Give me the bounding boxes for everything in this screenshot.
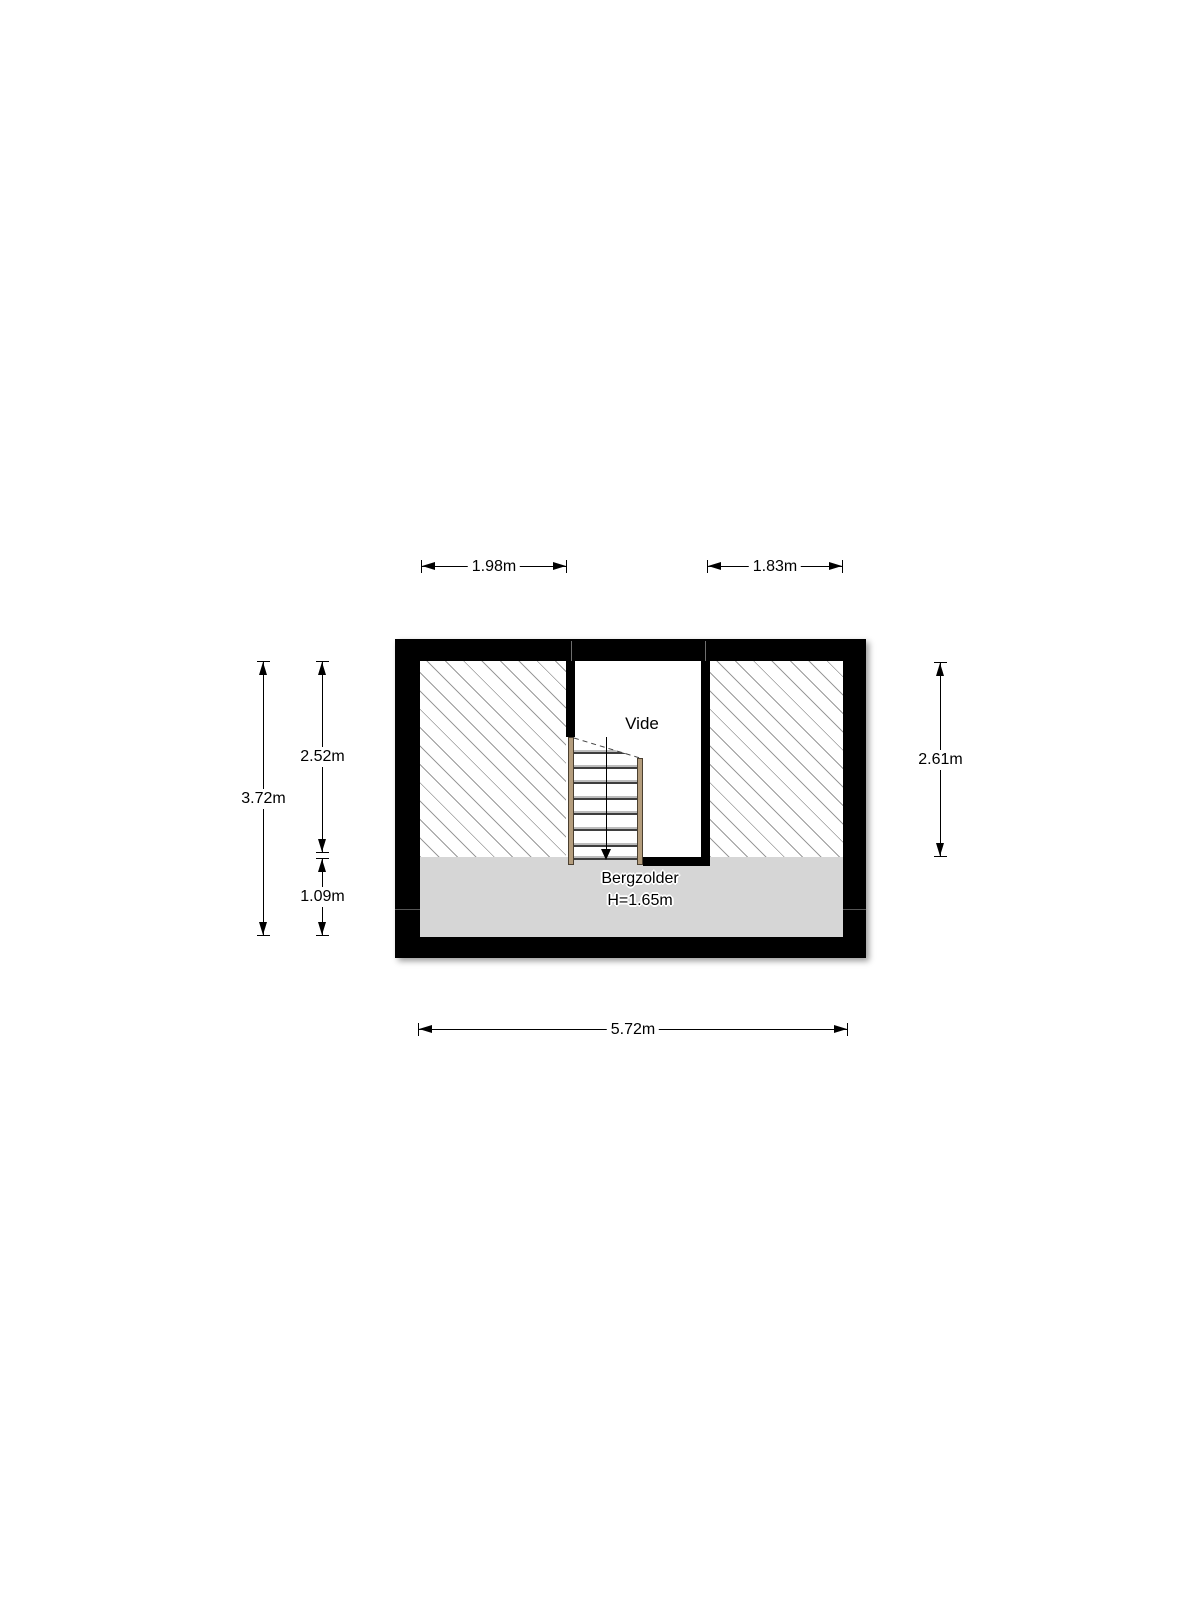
arrowhead-right-icon	[553, 562, 566, 570]
dimension-left-total: 3.72m	[256, 661, 271, 936]
stair-stringer-right	[637, 758, 643, 865]
arrowhead-down-icon	[936, 843, 944, 856]
dimension-tick	[316, 935, 329, 936]
arrowhead-left-icon	[422, 562, 435, 570]
room-label-group: Bergzolder H=1.65m	[601, 868, 678, 912]
vide-wall-left	[566, 661, 575, 737]
arrowhead-up-icon	[318, 859, 326, 872]
dimension-label: 1.09m	[297, 887, 347, 907]
dimension-tick	[842, 560, 843, 573]
arrowhead-down-icon	[318, 922, 326, 935]
room-height-label: H=1.65m	[601, 890, 678, 912]
arrowhead-down-icon	[318, 839, 326, 852]
dimension-top-right: 1.83m	[707, 559, 843, 574]
wall-seam	[705, 641, 706, 661]
dimension-label: 1.83m	[749, 558, 801, 576]
hatched-zone-left	[420, 661, 566, 857]
dimension-label: 1.98m	[468, 558, 520, 576]
vide-wall-right	[701, 661, 710, 866]
dimension-label: 2.52m	[297, 747, 347, 767]
dimension-label: 3.72m	[238, 789, 288, 809]
staircase	[568, 737, 643, 865]
arrowhead-down-icon	[259, 922, 267, 935]
dimension-tick	[257, 935, 270, 936]
void-label: Vide	[625, 714, 659, 734]
arrowhead-right-icon	[834, 1025, 847, 1033]
vide-wall-bottom	[643, 857, 710, 866]
dimension-label: 5.72m	[607, 1021, 659, 1039]
stair-cut-mask	[574, 737, 643, 758]
arrowhead-up-icon	[318, 662, 326, 675]
stair-direction-arrowhead-icon	[601, 849, 611, 860]
floor-plan-canvas: Vide Bergzolder H=1.65m 1.98m 1.83m 5.72…	[0, 0, 1200, 1600]
stair-stringer-left	[568, 737, 574, 865]
dimension-tick	[316, 852, 329, 853]
dimension-left-lower: 1.09m	[315, 858, 330, 936]
dimension-tick	[566, 560, 567, 573]
wall-seam	[395, 909, 420, 910]
dimension-label: 2.61m	[915, 750, 965, 770]
stair-walking-line	[606, 737, 607, 849]
dimension-tick	[934, 856, 947, 857]
arrowhead-left-icon	[419, 1025, 432, 1033]
dimension-right: 2.61m	[933, 662, 948, 857]
wall-seam	[571, 641, 572, 661]
dimension-left-upper: 2.52m	[315, 661, 330, 853]
arrowhead-left-icon	[708, 562, 721, 570]
dimension-tick	[847, 1023, 848, 1036]
wall-seam	[843, 909, 866, 910]
dimension-top-left: 1.98m	[421, 559, 567, 574]
arrowhead-up-icon	[259, 662, 267, 675]
room-name-label: Bergzolder	[601, 868, 678, 890]
arrowhead-up-icon	[936, 663, 944, 676]
hatched-zone-right	[710, 661, 843, 857]
dimension-bottom: 5.72m	[418, 1022, 848, 1037]
arrowhead-right-icon	[829, 562, 842, 570]
